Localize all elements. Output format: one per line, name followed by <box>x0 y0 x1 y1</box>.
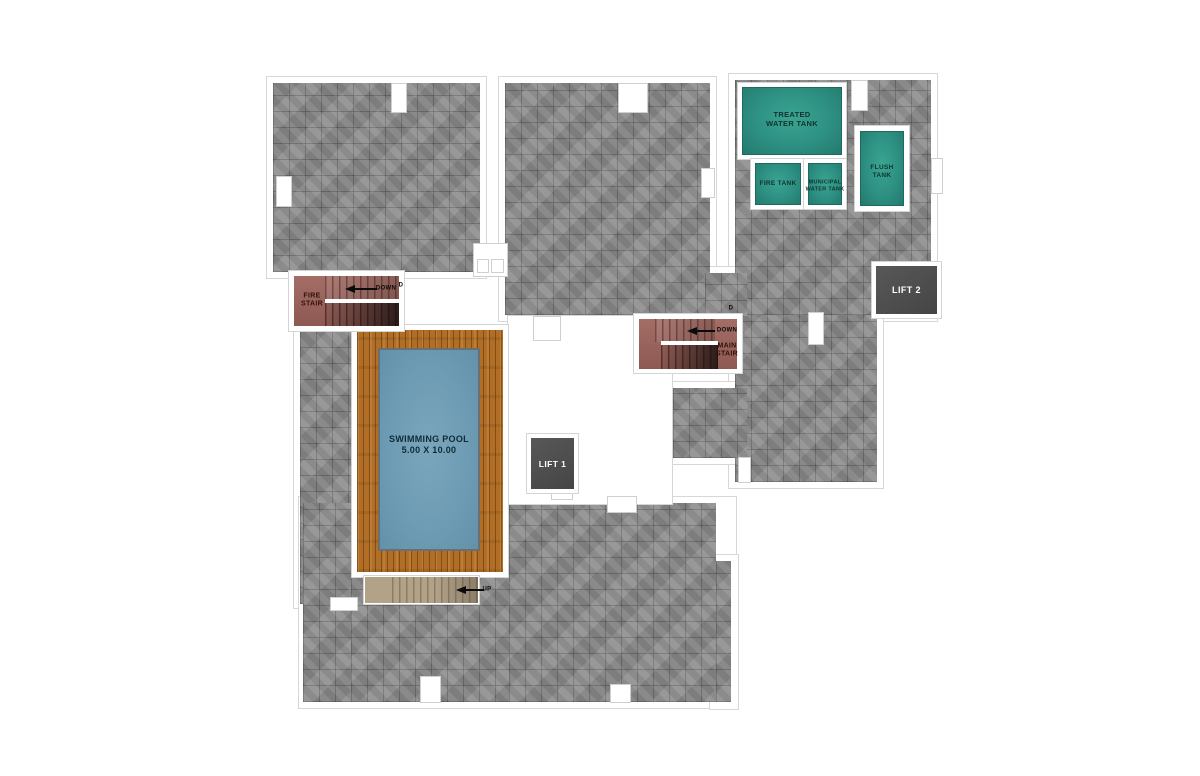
up-arrow <box>456 586 484 594</box>
lift-2-label: LIFT 2 <box>892 285 921 295</box>
opening-bottom-wall-b <box>610 684 631 703</box>
fire-stair-arrow-head <box>345 285 355 293</box>
up-label: UP <box>483 586 492 593</box>
opening-void-bottom <box>607 496 637 513</box>
fire-tank-label: FIRE TANK <box>760 180 797 188</box>
opening-topmiddle-room-right <box>701 168 715 198</box>
door-connector-right <box>738 457 751 483</box>
swimming-pool-label: SWIMMING POOL 5.00 X 10.00 <box>389 434 469 456</box>
column-tank-right <box>851 80 868 111</box>
shaft-corridor-door-a <box>477 259 489 273</box>
municipal-water-tank-label: MUNICIPAL WATER TANK <box>806 179 845 192</box>
opening-right-edge <box>931 158 943 194</box>
fire-stair-label: FIRE STAIR <box>301 293 323 310</box>
opening-left-strip <box>330 597 358 611</box>
opening-topleft-room-left <box>276 176 292 207</box>
floor-bottom-ext <box>716 561 731 702</box>
fire-stair-bottom-flight <box>325 303 399 326</box>
floor-room-topleft <box>273 83 480 272</box>
column-void-topleft <box>533 316 561 341</box>
opening-topleft-room-top <box>391 83 407 113</box>
main-stair-arrow-shaft <box>697 330 715 332</box>
treated-water-tank-label: TREATED WATER TANK <box>766 110 818 128</box>
floor-connector-void-right <box>673 388 747 458</box>
main-stair-label: MAIN STAIR <box>716 343 738 360</box>
shaft-corridor-door-b <box>491 259 504 273</box>
up-arrow-shaft <box>466 589 484 591</box>
pool-up-stair-landing <box>365 577 392 603</box>
floor-plan-canvas: SWIMMING POOL 5.00 X 10.00 UP FIRE STAIR… <box>0 0 1200 776</box>
main-stair-door-label: D <box>729 305 734 312</box>
floor-bottom-main <box>509 503 716 702</box>
column-right-area <box>808 312 824 345</box>
floor-connector-top <box>705 273 747 317</box>
opening-bottom-wall-a <box>420 676 441 703</box>
flush-tank-label: FLUSH TANK <box>870 164 893 180</box>
up-arrow-head <box>456 586 466 594</box>
main-stair-bottom-flight <box>661 345 718 369</box>
main-stair-arrow-head <box>687 327 697 335</box>
lift-2: LIFT 2 <box>876 266 937 314</box>
opening-topmiddle-room-top <box>618 83 648 113</box>
main-stair-down-label: DOWN <box>717 327 737 334</box>
main-stair-down-arrow <box>687 327 715 335</box>
lift-1: LIFT 1 <box>531 438 574 489</box>
fire-stair-down-label: DOWN <box>376 285 396 292</box>
floor-room-topmiddle <box>505 83 710 315</box>
floor-right-lower <box>735 315 877 482</box>
fire-stair-down-arrow <box>345 285 377 293</box>
fire-stair-door-label: D <box>399 282 404 289</box>
lift-1-label: LIFT 1 <box>539 459 566 469</box>
fire-stair-arrow-shaft <box>355 288 377 290</box>
